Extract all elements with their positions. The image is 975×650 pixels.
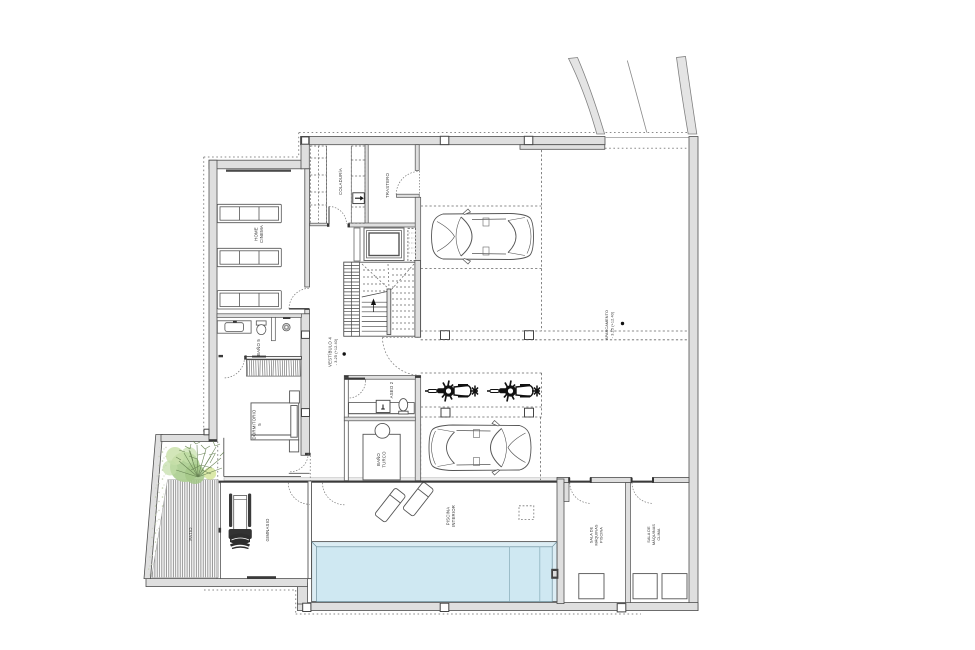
svg-text:- 3.25 (+12.40): - 3.25 (+12.40) bbox=[334, 338, 338, 365]
svg-text:CLIMA: CLIMA bbox=[657, 528, 661, 540]
svg-text:ASEO 2: ASEO 2 bbox=[389, 381, 394, 398]
svg-text:BAÑO: BAÑO bbox=[376, 453, 381, 466]
svg-text:PISCINA: PISCINA bbox=[600, 527, 604, 543]
svg-text:MÁQUINAS: MÁQUINAS bbox=[595, 524, 599, 545]
svg-text:PISCINA: PISCINA bbox=[446, 507, 451, 526]
svg-text:APARCAMENTO: APARCAMENTO bbox=[605, 310, 609, 340]
svg-text:CINEMA: CINEMA bbox=[259, 225, 264, 243]
svg-text:TRASTERO: TRASTERO bbox=[385, 173, 390, 198]
svg-text:INTERIOR: INTERIOR bbox=[451, 505, 456, 527]
svg-text:BAÑO 5: BAÑO 5 bbox=[256, 339, 261, 356]
svg-text:PATIO: PATIO bbox=[188, 527, 193, 541]
svg-text:5: 5 bbox=[257, 423, 262, 426]
svg-text:GIMNASIO: GIMNASIO bbox=[265, 518, 270, 542]
svg-text:COLADURÍA: COLADURÍA bbox=[338, 168, 343, 195]
svg-text:SALA DE: SALA DE bbox=[590, 526, 594, 543]
svg-text:MÁQUINAS: MÁQUINAS bbox=[652, 524, 656, 545]
svg-text:HOME: HOME bbox=[254, 227, 259, 241]
svg-text:SALA DE: SALA DE bbox=[647, 526, 651, 543]
svg-text:TURCO: TURCO bbox=[382, 451, 387, 468]
svg-text:- 3.25 (+12.40): - 3.25 (+12.40) bbox=[611, 311, 615, 338]
svg-text:VESTÍBULO 4: VESTÍBULO 4 bbox=[328, 337, 333, 367]
svg-text:DORMITORIO: DORMITORIO bbox=[252, 409, 257, 439]
